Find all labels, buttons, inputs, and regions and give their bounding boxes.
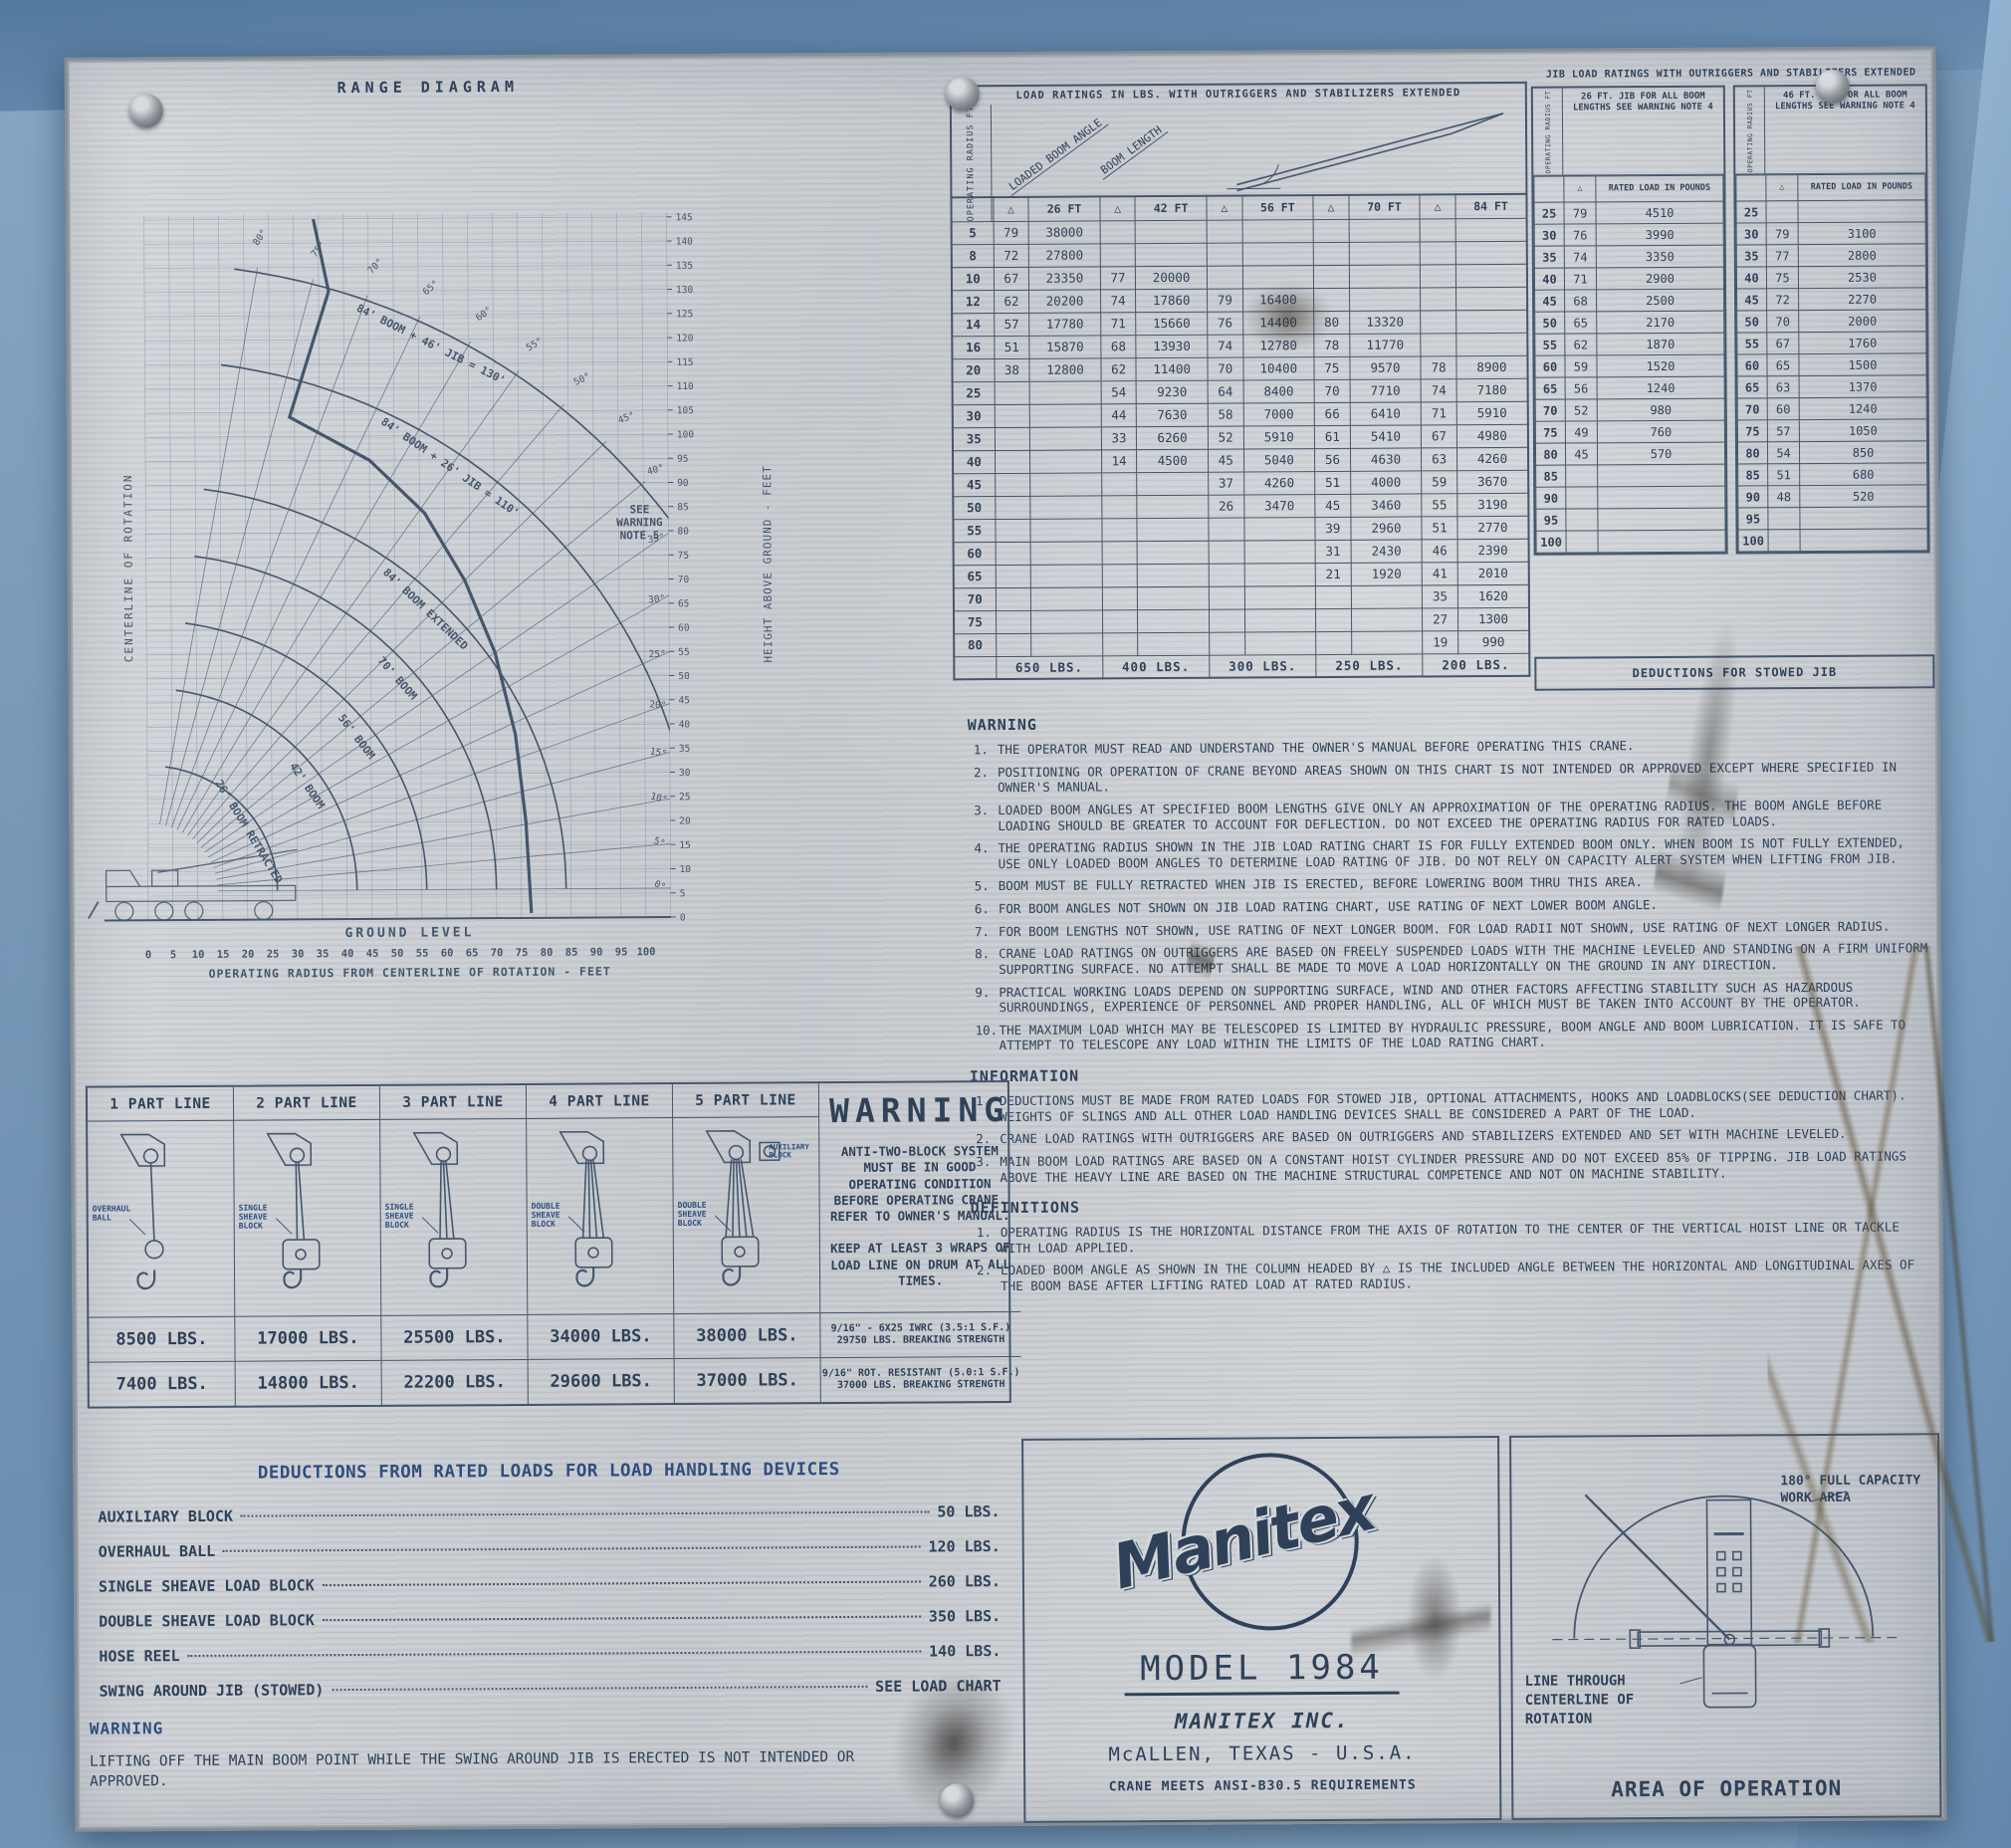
load-cell: 7710: [1350, 378, 1422, 401]
boom-angle-column-header: △: [993, 197, 1028, 221]
jib-load-cell: 1760: [1799, 332, 1926, 354]
jib-radius-cell: 85: [1738, 464, 1768, 486]
jib-table-row: 35772800: [1736, 244, 1925, 267]
load-cell: 12780: [1242, 334, 1314, 356]
load-cell: [1030, 564, 1102, 586]
load-cell: [1244, 631, 1316, 654]
note-item: 3.MAIN BOOM LOAD RATINGS ARE BASED ON A …: [970, 1148, 1933, 1185]
jib-radius-cell: 100: [1536, 531, 1566, 553]
angle-tick-label: 5°: [652, 835, 666, 849]
radius-cell: 30: [953, 404, 995, 427]
jib-angle-cell: 57: [1767, 420, 1799, 442]
radius-cell: 50: [953, 496, 995, 519]
load-cell: [1244, 608, 1316, 631]
jib-load-cell: 1050: [1799, 419, 1926, 442]
operating-radius-corner-label: OPERATING RADIUS FT: [952, 105, 993, 222]
jib-load-cell: 3990: [1596, 223, 1723, 246]
warning-notes-list: 1.THE OPERATOR MUST READ AND UNDERSTAND …: [968, 736, 1933, 1053]
max-load-rot-resistant-value: 14800 LBS.: [236, 1360, 381, 1406]
part-line-header: 3 PART LINE: [380, 1085, 526, 1120]
boom-arc-label: 84' BOOM EXTENDED: [380, 566, 471, 652]
angle-cell: 27: [1423, 607, 1458, 630]
part-line-column: 4 PART LINEDOUBLE SHEAVE BLOCK34000 LBS.…: [527, 1084, 675, 1404]
load-cell: 10400: [1243, 356, 1315, 379]
angle-cell: 74: [1100, 289, 1136, 312]
deduction-label: SINGLE SHEAVE LOAD BLOCK: [99, 1576, 315, 1595]
jib-load-cell: 2270: [1799, 288, 1926, 311]
note-number: 3.: [968, 803, 998, 833]
jib-radius-cell: 45: [1535, 290, 1565, 312]
load-cell: [1137, 518, 1209, 541]
jib-load-cell: 1240: [1799, 397, 1926, 420]
angle-cell: [1421, 333, 1456, 355]
note-number: 5.: [969, 878, 999, 894]
angle-cell: 80: [1314, 311, 1350, 334]
height-axis-label: HEIGHT ABOVE GROUND - FEET: [761, 465, 775, 662]
radius-cell: 5: [952, 221, 994, 244]
jib-radius-cell: 25: [1736, 201, 1766, 223]
load-cell: 13320: [1349, 310, 1421, 333]
radius-tick-labels: 0510152025303540455055606570758085909510…: [145, 946, 656, 961]
note-item: 7.FOR BOOM LENGTHS NOT SHOWN, USE RATING…: [969, 918, 1932, 940]
jib-radius-cell: 50: [1737, 311, 1767, 333]
jib-table-row: 55621870: [1535, 333, 1724, 355]
load-cell: 3190: [1457, 493, 1529, 516]
angle-cell: [1207, 266, 1242, 289]
jib-table-row: 7549760: [1535, 420, 1724, 443]
jib-angle-cell: [1566, 487, 1598, 509]
block-type-label: DOUBLE SHEAVE BLOCK: [678, 1202, 724, 1229]
angle-tick-label: 10°: [649, 791, 668, 806]
load-cell: [1031, 632, 1103, 655]
deduction-row: SWING AROUND JIB (STOWED)SEE LOAD CHART: [100, 1677, 1002, 1701]
boom-arc-label: 70' BOOM: [375, 654, 420, 703]
note-item: 6.FOR BOOM ANGLES NOT SHOWN ON JIB LOAD …: [969, 895, 1932, 917]
jib-table-row: 40712900: [1534, 267, 1723, 290]
note-text: PRACTICAL WORKING LOADS DEPEND ON SUPPOR…: [999, 979, 1932, 1016]
jib-load-cell: 3350: [1596, 245, 1723, 268]
jib-angle-cell: [1768, 508, 1800, 530]
angle-cell: [1313, 242, 1349, 265]
load-cell: 17860: [1136, 289, 1208, 312]
height-tick-label: 5: [680, 888, 686, 899]
dotted-leader: [241, 1510, 929, 1516]
boom-length-column-header: 70 FT: [1349, 194, 1421, 218]
radius-tick-label: 60: [441, 947, 454, 959]
angle-cell: 57: [994, 313, 1029, 336]
angle-cell: [1209, 564, 1244, 586]
angle-tick-label: 60°: [474, 305, 494, 324]
angle-cell: [1207, 220, 1242, 243]
deduction-row: OVERHAUL BALL120 LBS.: [99, 1537, 1001, 1561]
angle-cell: 51: [1315, 471, 1351, 494]
area-of-operation-section: 180° FULL CAPACITY WORK AREA LINE THROUG…: [1509, 1433, 1941, 1820]
jib-ratings-table: △RATED LOAD IN POUNDS2530793100357728004…: [1735, 174, 1927, 553]
load-cell: [1349, 218, 1421, 241]
full-capacity-work-area-label: 180° FULL CAPACITY WORK AREA: [1780, 1473, 1929, 1507]
jib-angle-cell: 72: [1767, 289, 1799, 311]
angle-cell: 71: [1421, 401, 1456, 424]
load-cell: [1244, 517, 1316, 540]
load-cell: 11400: [1136, 357, 1208, 380]
jib-subtable-header-band: OPERATING RADIUS FT26 FT. JIB FOR ALL BO…: [1533, 87, 1724, 176]
jib-table-row: 65561240: [1535, 376, 1724, 399]
load-cell: 4630: [1350, 447, 1422, 470]
load-cell: [1138, 609, 1210, 632]
jib-table-row: 90: [1536, 486, 1725, 509]
note-item: 4.THE OPERATING RADIUS SHOWN IN THE JIB …: [968, 834, 1931, 871]
radius-tick-label: 15: [217, 949, 230, 961]
part-line-columns: 1 PART LINEOVERHAUL BALL8500 LBS.7400 LB…: [88, 1083, 821, 1406]
radius-cell: 16: [952, 336, 994, 358]
deductions-for-stowed-jib-bar: DEDUCTIONS FOR STOWED JIB: [1534, 654, 1934, 690]
boom-angle-column-header: △: [1420, 194, 1455, 218]
angle-cell: 70: [1314, 379, 1350, 402]
radius-cell: 60: [954, 542, 996, 565]
radius-cell: 45: [953, 473, 995, 496]
jib-subtable-46ft: OPERATING RADIUS FT46 FT. JIB FOR ALL BO…: [1733, 84, 1930, 555]
deductions-title: DEDUCTIONS FROM RATED LOADS FOR LOAD HAN…: [98, 1459, 1000, 1485]
information-list: 1.DEDUCTIONS MUST BE MADE FROM RATED LOA…: [970, 1087, 1934, 1185]
load-cell: 2430: [1351, 539, 1423, 562]
company-location: McALLEN, TEXAS - U.S.A.: [1108, 1741, 1416, 1765]
load-cell: 38000: [1028, 220, 1100, 243]
jib-table-row: 45682500: [1535, 289, 1724, 312]
angle-cell: [995, 473, 1030, 496]
angle-cell: 58: [1208, 403, 1243, 426]
max-load-rot-resistant-value: 7400 LBS.: [90, 1361, 235, 1407]
height-tick-label: 75: [678, 551, 690, 562]
dotted-leader: [323, 1581, 921, 1587]
operating-radius-vertical-text: OPERATING RADIUS FT: [967, 106, 976, 221]
load-cell: [1137, 472, 1209, 495]
jib-table-row: 100: [1536, 530, 1725, 553]
angle-cell: 76: [1208, 312, 1243, 335]
load-cell: 13930: [1136, 335, 1208, 357]
load-cell: 7180: [1456, 378, 1528, 401]
jib-radius-cell: 50: [1535, 312, 1565, 334]
load-cell: [1138, 632, 1210, 655]
deduction-label: OVERHAUL BALL: [99, 1542, 216, 1561]
operating-radius-vertical-label: OPERATING RADIUS FT: [1735, 87, 1766, 174]
max-line-pull-cell: 400 LBS.: [1102, 655, 1209, 679]
note-text: THE OPERATOR MUST READ AND UNDERSTAND TH…: [998, 736, 1931, 757]
angle-cell: [1102, 586, 1138, 609]
angle-tick-label: 30°: [648, 593, 666, 606]
note-text: OPERATING RADIUS IS THE HORIZONTAL DISTA…: [1001, 1219, 1934, 1256]
main-table-footer-row: 650 LBS.400 LBS.300 LBS.250 LBS.200 LBS.: [954, 653, 1529, 680]
screw-top-right: [1816, 70, 1850, 104]
jib-load-cell: 2900: [1596, 267, 1723, 290]
height-tick-labels: 0510152025303540455055606570758085909510…: [667, 212, 698, 923]
jib-radius-cell: 95: [1738, 508, 1768, 530]
load-cell: 5910: [1243, 425, 1315, 448]
angle-tick-label: 15°: [649, 746, 668, 760]
jib-table-row: 25: [1736, 200, 1925, 223]
radius-tick-label: 5: [170, 949, 176, 961]
height-tick-label: 65: [678, 598, 690, 609]
angle-cell: 26: [1209, 495, 1244, 518]
load-cell: 3460: [1351, 493, 1423, 516]
jib-angle-cell: 74: [1564, 246, 1596, 268]
jib-radius-cell: 95: [1536, 509, 1566, 531]
jib-table-row: 8551680: [1738, 463, 1927, 486]
angle-tick-label: 0°: [652, 878, 667, 893]
jib-table-row: 50652170: [1535, 311, 1724, 334]
jib-radius-cell: 70: [1535, 399, 1565, 421]
load-cell: [1136, 220, 1208, 243]
angle-cell: 66: [1314, 402, 1350, 425]
angle-cell: [996, 587, 1031, 610]
load-cell: [1349, 241, 1421, 264]
load-cell: [1244, 540, 1316, 563]
jib-angle-cell: [1766, 201, 1798, 223]
jib-load-cell: 2530: [1798, 266, 1925, 289]
angle-cell: 67: [1422, 424, 1457, 447]
radius-tick-label: 85: [565, 947, 578, 959]
angle-cell: [1421, 264, 1456, 287]
angle-cell: [1209, 586, 1244, 609]
hook-block-diagram: SINGLE SHEAVE BLOCK: [234, 1120, 380, 1316]
load-cell: 17780: [1029, 312, 1101, 335]
jib-subtable-header-text: 46 FT. JIB FOR ALL BOOM LENGTHS SEE WARN…: [1765, 86, 1926, 174]
angle-cell: [1102, 541, 1138, 564]
angle-cell: [1102, 632, 1138, 655]
block-type-label: SINGLE SHEAVE BLOCK: [239, 1204, 285, 1231]
load-cell: 2390: [1457, 539, 1529, 562]
manufacturer-section: Manitex MODEL 1984 MANITEX INC. McALLEN,…: [1021, 1436, 1501, 1823]
jib-load-cell: 570: [1597, 442, 1724, 465]
radius-cell: 10: [952, 267, 994, 290]
height-tick-label: 40: [679, 719, 691, 730]
angle-cell: 74: [1421, 378, 1456, 401]
angle-cell: 61: [1314, 425, 1350, 448]
part-line-column: 5 PART LINEDOUBLE SHEAVE BLOCKAUXILIARY …: [673, 1083, 821, 1403]
height-tick-label: 55: [678, 647, 690, 658]
jib-lifting-warning-section: WARNING LIFTING OFF THE MAIN BOOM POINT …: [90, 1714, 986, 1792]
load-cell: [1030, 518, 1102, 541]
load-cell: [1030, 449, 1102, 472]
load-cell: [1244, 563, 1316, 585]
note-number: 7.: [969, 924, 999, 940]
note-text: THE MAXIMUM LOAD WHICH MAY BE TELESCOPED…: [1000, 1017, 1933, 1053]
radius-tick-label: 0: [145, 949, 151, 961]
note-line: NOTE 5: [620, 529, 660, 542]
jib-angle-cell: [1768, 530, 1800, 552]
crane-load-chart-placard: RANGE DIAGRAM 84' BOOM + 46' JIB = 130'8…: [65, 46, 1947, 1831]
information-heading: INFORMATION: [970, 1061, 1933, 1085]
jib-angle-cell: [1566, 531, 1598, 553]
load-cell: 5910: [1456, 401, 1528, 424]
load-cell: 12800: [1029, 357, 1101, 380]
max-line-pull-cell: 650 LBS.: [996, 655, 1102, 679]
height-tick-label: 80: [677, 526, 689, 537]
angle-cell: [1316, 608, 1352, 631]
load-cell: 15870: [1029, 335, 1101, 357]
anti-two-block-warning-text: ANTI-TWO-BLOCK SYSTEM MUST BE IN GOOD OP…: [829, 1143, 1010, 1225]
load-cell: 27800: [1028, 243, 1100, 266]
radius-tick-label: 25: [267, 948, 280, 960]
radius-cell: 80: [954, 633, 996, 656]
jib-angle-cell: 56: [1565, 377, 1597, 399]
load-cell: [1351, 584, 1423, 607]
rope-spec-line: 37000 LBS. BREAKING STRENGTH: [837, 1379, 1005, 1393]
angle-cell: [1421, 310, 1456, 333]
part-line-header: 2 PART LINE: [234, 1086, 379, 1121]
height-tick-label: 45: [678, 695, 690, 706]
angle-tick-label: 50°: [572, 371, 592, 388]
centerline-of-rotation-label: LINE THROUGH CENTERLINE OF ROTATION: [1525, 1672, 1694, 1730]
radius-tick-label: 90: [590, 946, 603, 958]
note-number: 9.: [969, 985, 999, 1016]
jib-table-row: 9048520: [1738, 485, 1927, 508]
height-tick-label: 25: [679, 792, 691, 803]
operating-radius-vertical-text: OPERATING RADIUS FT: [1745, 89, 1754, 172]
screw-top-left: [129, 94, 163, 127]
boom-angle-column-header: △: [1313, 195, 1349, 219]
angle-cell: 19: [1423, 630, 1458, 653]
jib-angle-cell: 54: [1767, 442, 1799, 464]
height-tick-label: 35: [679, 744, 691, 755]
height-tick-label: 60: [678, 622, 690, 633]
deduction-label: DOUBLE SHEAVE LOAD BLOCK: [99, 1611, 315, 1630]
angle-cell: 56: [1315, 448, 1351, 471]
boom-arc: [221, 362, 696, 891]
load-cell: 6410: [1350, 401, 1422, 424]
operating-radius-vertical-label: OPERATING RADIUS FT: [1533, 88, 1564, 175]
note-number: 1.: [968, 742, 998, 758]
note-text: THE OPERATING RADIUS SHOWN IN THE JIB LO…: [998, 834, 1931, 871]
load-cell: [1029, 380, 1101, 403]
angle-cell: 77: [1100, 266, 1136, 289]
load-cell: [1029, 403, 1101, 426]
jib-angle-cell: 63: [1767, 376, 1799, 398]
load-cell: [1455, 287, 1527, 310]
note-item: 10.THE MAXIMUM LOAD WHICH MAY BE TELESCO…: [970, 1017, 1933, 1053]
angle-cell: [1209, 632, 1244, 655]
boom-angle-column-header: △: [1207, 196, 1242, 220]
jib-table-row: 45722270: [1737, 288, 1926, 311]
jib-load-cell: [1800, 529, 1927, 552]
angle-cell: [1313, 265, 1349, 288]
jib-load-cell: 1520: [1597, 354, 1724, 377]
dotted-leader: [332, 1686, 867, 1691]
jib-angle-cell: 75: [1766, 267, 1798, 289]
jib-load-cell: 4510: [1596, 201, 1723, 224]
angle-cell: [1101, 495, 1137, 518]
angle-tick-label: 20°: [649, 699, 667, 711]
jib-angle-cell: 60: [1767, 398, 1799, 420]
radius-tick-label: 55: [416, 948, 429, 960]
deduction-label: SWING AROUND JIB (STOWED): [100, 1681, 325, 1700]
load-cell: 2770: [1457, 516, 1529, 539]
jib-angle-cell: 76: [1564, 224, 1596, 246]
angle-cell: 68: [1100, 335, 1136, 357]
angle-cell: [1209, 541, 1244, 564]
radius-tick-label: 65: [466, 947, 479, 959]
load-cell: 1920: [1351, 562, 1423, 584]
note-item: 2.CRANE LOAD RATINGS WITH OUTRIGGERS ARE…: [970, 1126, 1933, 1148]
angle-cell: 51: [994, 336, 1029, 358]
notes-section: WARNING 1.THE OPERATOR MUST READ AND UND…: [968, 710, 1935, 1301]
note-item: 2.POSITIONING OR OPERATION OF CRANE BEYO…: [968, 759, 1931, 796]
jib-table-row: 95: [1738, 507, 1927, 530]
deduction-label: AUXILIARY BLOCK: [98, 1507, 233, 1526]
jib-angle-cell: [1566, 465, 1598, 487]
jib-load-cell: 2800: [1798, 244, 1925, 267]
jib-load-cell: 2000: [1799, 310, 1926, 333]
jib-table-row: 7052980: [1535, 398, 1724, 421]
angle-cell: 67: [994, 267, 1029, 290]
photo-of-crane-load-chart-placard: { "colors": { "ink": "#44566c", "ink_dar…: [0, 0, 2011, 1848]
height-tick-label: 110: [677, 381, 695, 392]
note-item: 1.DEDUCTIONS MUST BE MADE FROM RATED LOA…: [970, 1087, 1933, 1124]
jib-table-row: 30793100: [1736, 222, 1925, 245]
jib-radius-cell: 90: [1738, 486, 1768, 508]
hook-block-diagram: SINGLE SHEAVE BLOCK: [380, 1119, 527, 1315]
angle-cell: 51: [1422, 516, 1457, 539]
angle-tick-label: 25°: [649, 649, 666, 660]
height-tick-label: 140: [676, 236, 694, 247]
height-tick-label: 30: [679, 768, 691, 779]
definitions-list: 1.OPERATING RADIUS IS THE HORIZONTAL DIS…: [971, 1219, 1934, 1293]
jib-radius-cell: 65: [1535, 377, 1565, 399]
note-text: POSITIONING OR OPERATION OF CRANE BEYOND…: [998, 759, 1931, 796]
boom-length-diagonal-label: BOOM LENGTH: [1095, 121, 1168, 180]
angle-cell: 63: [1422, 447, 1457, 470]
jib-angle-cell: 48: [1768, 486, 1800, 508]
load-cell: 2010: [1457, 562, 1529, 584]
note-item: 8.CRANE LOAD RATINGS ON OUTRIGGERS ARE B…: [969, 941, 1932, 978]
angle-cell: 44: [1101, 403, 1137, 426]
note-item: 9.PRACTICAL WORKING LOADS DEPEND ON SUPP…: [969, 979, 1932, 1016]
note-text: LOADED BOOM ANGLES AT SPECIFIED BOOM LEN…: [998, 797, 1931, 833]
note-text: CRANE LOAD RATINGS ON OUTRIGGERS ARE BAS…: [999, 941, 1932, 978]
jib-header-row: △RATED LOAD IN POUNDS: [1736, 174, 1925, 201]
radius-tick-label: 100: [637, 946, 656, 958]
note-text: FOR BOOM ANGLES NOT SHOWN ON JIB LOAD RA…: [999, 895, 1932, 916]
dotted-leader: [323, 1616, 921, 1622]
angle-cell: 35: [1423, 584, 1458, 607]
load-cell: [1030, 495, 1102, 518]
jib-angle-cell: 77: [1766, 245, 1798, 267]
angle-cell: [995, 519, 1030, 542]
boom-length-column-header: 84 FT: [1455, 194, 1527, 218]
angle-cell: [1100, 220, 1136, 243]
note-item: 1.THE OPERATOR MUST READ AND UNDERSTAND …: [968, 736, 1931, 758]
jib-table-row: 70601240: [1737, 397, 1926, 420]
radius-tick-label: 50: [391, 948, 404, 960]
height-tick-label: 120: [676, 333, 694, 344]
angle-cell: [996, 610, 1031, 633]
height-tick-label: 145: [676, 212, 693, 223]
jib-load-header: RATED LOAD IN POUNDS: [1798, 174, 1925, 201]
note-number: 4.: [968, 840, 998, 871]
jib-load-cell: 3100: [1798, 222, 1925, 245]
angle-cell: 33: [1101, 426, 1137, 449]
load-cell: 1620: [1457, 584, 1529, 607]
jib-table-row: 30763990: [1534, 223, 1723, 246]
jib-angle-cell: 45: [1565, 443, 1597, 465]
note-number: 2.: [968, 765, 998, 796]
load-cell: [1456, 310, 1528, 333]
angle-cell: [995, 404, 1030, 427]
load-cell: 1300: [1457, 607, 1529, 630]
load-cell: [1351, 607, 1423, 630]
jib-load-cell: [1598, 508, 1725, 531]
jib-load-cell: 1500: [1799, 353, 1926, 376]
max-load-rot-resistant-value: 29600 LBS.: [529, 1358, 674, 1404]
